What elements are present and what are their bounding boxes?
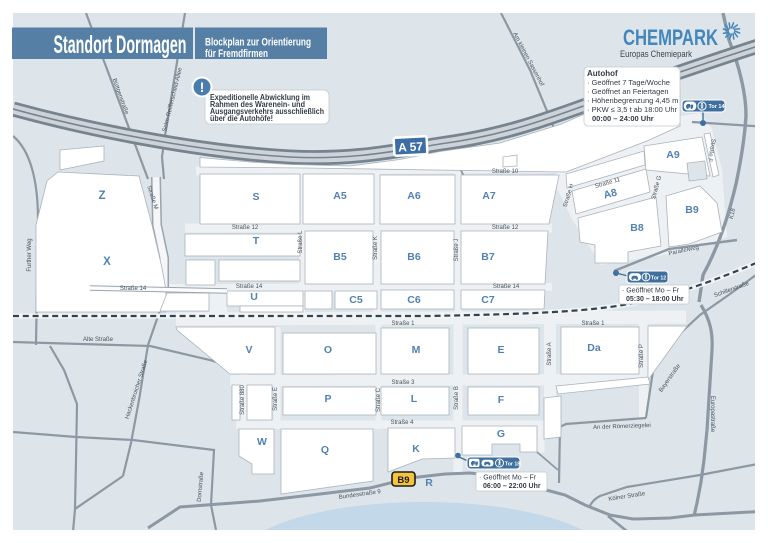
svg-text:A7: A7 — [482, 190, 496, 202]
svg-text:Q: Q — [321, 444, 329, 456]
svg-text:Straße 14: Straße 14 — [236, 284, 263, 290]
svg-text:Further Weg: Further Weg — [27, 238, 33, 271]
svg-text:für Fremdfirmen: für Fremdfirmen — [205, 48, 268, 60]
svg-text:CHEMPARK: CHEMPARK — [623, 25, 718, 50]
svg-text:Tor 12: Tor 12 — [651, 276, 666, 282]
svg-text:Straße B: Straße B — [454, 386, 460, 410]
svg-text:!: ! — [200, 80, 205, 95]
svg-text:X: X — [103, 256, 111, 268]
svg-text:A 57: A 57 — [398, 139, 424, 154]
svg-text:Tor 14: Tor 14 — [708, 104, 725, 110]
svg-text:G: G — [497, 428, 505, 440]
svg-text:Straße 4: Straße 4 — [390, 420, 414, 426]
svg-text:Alte Straße: Alte Straße — [83, 337, 114, 343]
svg-text:Europastraße: Europastraße — [709, 396, 715, 433]
svg-text:Straße 880: Straße 880 — [240, 384, 246, 414]
svg-text:· PKW ≤ 3,5 t ab 18:00 Uhr: · PKW ≤ 3,5 t ab 18:00 Uhr — [587, 105, 677, 114]
svg-text:K: K — [412, 443, 420, 455]
svg-text:R: R — [425, 477, 433, 489]
svg-text:Straße 12: Straße 12 — [492, 225, 519, 231]
svg-text:Straße 3: Straße 3 — [391, 380, 415, 386]
svg-text:W: W — [257, 436, 267, 448]
svg-text:F: F — [498, 394, 505, 406]
svg-text:Straße J: Straße J — [454, 239, 460, 262]
svg-text:L: L — [411, 393, 418, 405]
svg-text:· Geöffnet Mo – Fr: · Geöffnet Mo – Fr — [479, 475, 537, 482]
svg-text:Straße 1: Straße 1 — [391, 321, 415, 327]
svg-text:A5: A5 — [333, 190, 347, 202]
svg-text:Straße A: Straße A — [547, 342, 553, 365]
svg-text:Straße 10: Straße 10 — [492, 169, 519, 175]
svg-text:Straße 1: Straße 1 — [581, 321, 605, 327]
svg-text:V: V — [245, 344, 252, 356]
svg-text:B9: B9 — [685, 204, 699, 216]
svg-text:· Höhenbegrenzung 4,45 m: · Höhenbegrenzung 4,45 m — [587, 96, 678, 105]
svg-text:Straße C: Straße C — [376, 387, 382, 412]
svg-text:Autohof: Autohof — [587, 69, 618, 78]
svg-text:00:00 – 24:00 Uhr: 00:00 – 24:00 Uhr — [592, 114, 654, 123]
svg-text:Straße E: Straße E — [273, 387, 279, 411]
svg-text:· Geöffnet 7 Tage/Woche: · Geöffnet 7 Tage/Woche — [587, 78, 670, 87]
svg-text:Straße L: Straße L — [298, 230, 304, 254]
svg-text:B9: B9 — [397, 475, 409, 486]
svg-text:Straße K: Straße K — [373, 236, 379, 260]
svg-text:A9: A9 — [666, 149, 680, 161]
svg-text:06:00 – 22:00 Uhr: 06:00 – 22:00 Uhr — [483, 483, 541, 490]
svg-text:U: U — [250, 291, 258, 303]
svg-text:T: T — [253, 235, 260, 247]
svg-text:Standort Dormagen: Standort Dormagen — [54, 31, 187, 59]
svg-text:E: E — [497, 344, 504, 356]
svg-text:· Geöffnet an Feiertagen: · Geöffnet an Feiertagen — [587, 87, 669, 96]
svg-text:Europas Chemiepark: Europas Chemiepark — [620, 49, 692, 59]
svg-text:· Geöffnet Mo – Fr: · Geöffnet Mo – Fr — [622, 288, 680, 295]
svg-text:Tor 18: Tor 18 — [505, 462, 520, 468]
svg-text:O: O — [324, 344, 332, 356]
svg-text:Straße 12: Straße 12 — [232, 225, 259, 231]
svg-text:B5: B5 — [333, 251, 347, 263]
svg-text:Blockplan zur Orientierung: Blockplan zur Orientierung — [205, 37, 311, 49]
svg-text:S: S — [252, 191, 259, 203]
svg-text:Straße 14: Straße 14 — [493, 284, 520, 290]
svg-text:Straße 14: Straße 14 — [120, 286, 147, 292]
svg-text:Straße P: Straße P — [639, 344, 645, 368]
svg-text:B7: B7 — [481, 251, 495, 263]
svg-text:über die Autohöfe!: über die Autohöfe! — [210, 114, 273, 123]
svg-text:A6: A6 — [407, 190, 421, 202]
svg-text:Da: Da — [587, 342, 601, 354]
svg-text:P: P — [324, 393, 331, 405]
svg-text:B8: B8 — [630, 222, 644, 234]
svg-text:C5: C5 — [349, 294, 363, 306]
svg-text:C7: C7 — [481, 294, 495, 306]
svg-text:M: M — [412, 344, 421, 356]
svg-text:Z: Z — [98, 190, 105, 202]
svg-text:B6: B6 — [407, 251, 421, 263]
svg-text:05:30 – 18:00 Uhr: 05:30 – 18:00 Uhr — [626, 296, 684, 303]
svg-text:C6: C6 — [407, 294, 421, 306]
